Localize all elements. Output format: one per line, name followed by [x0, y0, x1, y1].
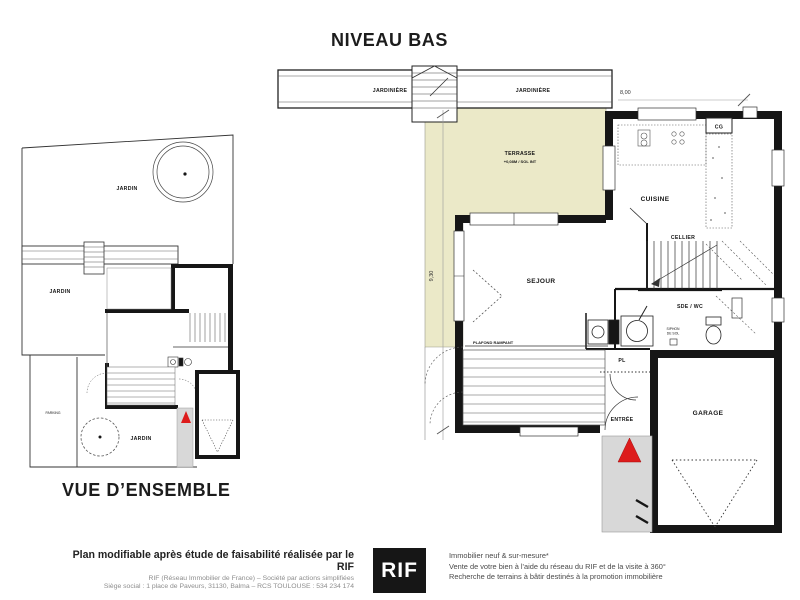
main-plan-drawing: JARDINIÈRE JARDINIÈRE 8,00 9,30 TERRASSE…	[270, 58, 792, 540]
parking-label: PARKING	[45, 411, 60, 415]
overview-garage	[197, 372, 238, 457]
main-plan-title: NIVEAU BAS	[331, 30, 448, 51]
floor-drain-label-2: DE SOL	[667, 332, 680, 336]
garden-label-bottom: JARDIN	[130, 436, 151, 442]
exterior-stairs	[412, 66, 457, 122]
entry-label: ENTRÉE	[611, 415, 634, 423]
sloped-ceiling-band: PLAFOND RAMPANT	[463, 340, 608, 425]
svg-text:CG: CG	[715, 125, 723, 131]
boiler-box: CG	[706, 118, 732, 133]
overview-striped-band	[107, 367, 175, 405]
footer-left-block: Plan modifiable après étude de faisabili…	[58, 549, 354, 592]
svg-text:PLAFOND RAMPANT: PLAFOND RAMPANT	[473, 340, 514, 345]
bathroom-label: SDE / WC	[677, 304, 703, 310]
floor-drain-label-1: SIPHON	[667, 327, 681, 331]
footer-address-line: Siège social : 1 place de Paveurs, 31130…	[58, 583, 354, 591]
terrace-note: +0,08M / SOL INT	[504, 159, 537, 164]
tree-icon	[153, 142, 213, 202]
svg-text:8,00: 8,00	[620, 90, 631, 96]
footer-company-line: RIF (Réseau Immobilier de France) – Soci…	[58, 575, 354, 583]
bottom-tree-icon	[81, 418, 119, 456]
footer-headline: Plan modifiable après étude de faisabili…	[58, 549, 354, 573]
bathroom-fixtures	[588, 306, 721, 346]
terrace-label: TERRASSE	[505, 151, 536, 157]
rif-logo: RIF	[373, 548, 426, 593]
cellier-door	[630, 208, 647, 224]
footer-right-block: Immobilier neuf & sur-mesure* Vente de v…	[449, 551, 666, 583]
overview-plan-drawing: JARDIN JARDIN	[10, 130, 265, 475]
cellar-label: CELLIER	[671, 235, 695, 241]
garden-label-mid: JARDIN	[49, 289, 70, 295]
overview-terrace	[107, 268, 171, 309]
floor-plan-page: NIVEAU BAS JARDINIÈRE JARDINIÈRE 8,00	[0, 0, 800, 600]
kitchen-label: CUISINE	[641, 196, 670, 203]
dimension-width: 8,00	[618, 90, 750, 106]
planter-label-right: JARDINIÈRE	[516, 86, 551, 94]
overview-title: VUE D’ENSEMBLE	[62, 480, 230, 501]
overview-fixtures	[168, 357, 192, 367]
garden-label-top: JARDIN	[116, 186, 137, 192]
overview-planter	[22, 242, 178, 274]
planter-label-left: JARDINIÈRE	[373, 86, 408, 94]
terrace-area	[425, 108, 606, 347]
kitchen-tile-dots	[710, 146, 726, 221]
svg-text:9,30: 9,30	[429, 271, 435, 282]
footer-service-2: Vente de votre bien à l'aide du réseau d…	[449, 562, 666, 573]
garage-label: GARAGE	[693, 410, 724, 417]
footer-service-3: Recherche de terrains à bâtir destinés à…	[449, 572, 666, 583]
rif-logo-text: RIF	[381, 559, 418, 583]
footer-service-1: Immobilier neuf & sur-mesure*	[449, 551, 666, 562]
door-swing-dashed	[473, 270, 502, 322]
closet-label: PL	[618, 358, 626, 364]
overview-stairs	[190, 313, 225, 342]
garage-door-swing	[672, 460, 757, 527]
living-room-label: SEJOUR	[527, 278, 556, 285]
